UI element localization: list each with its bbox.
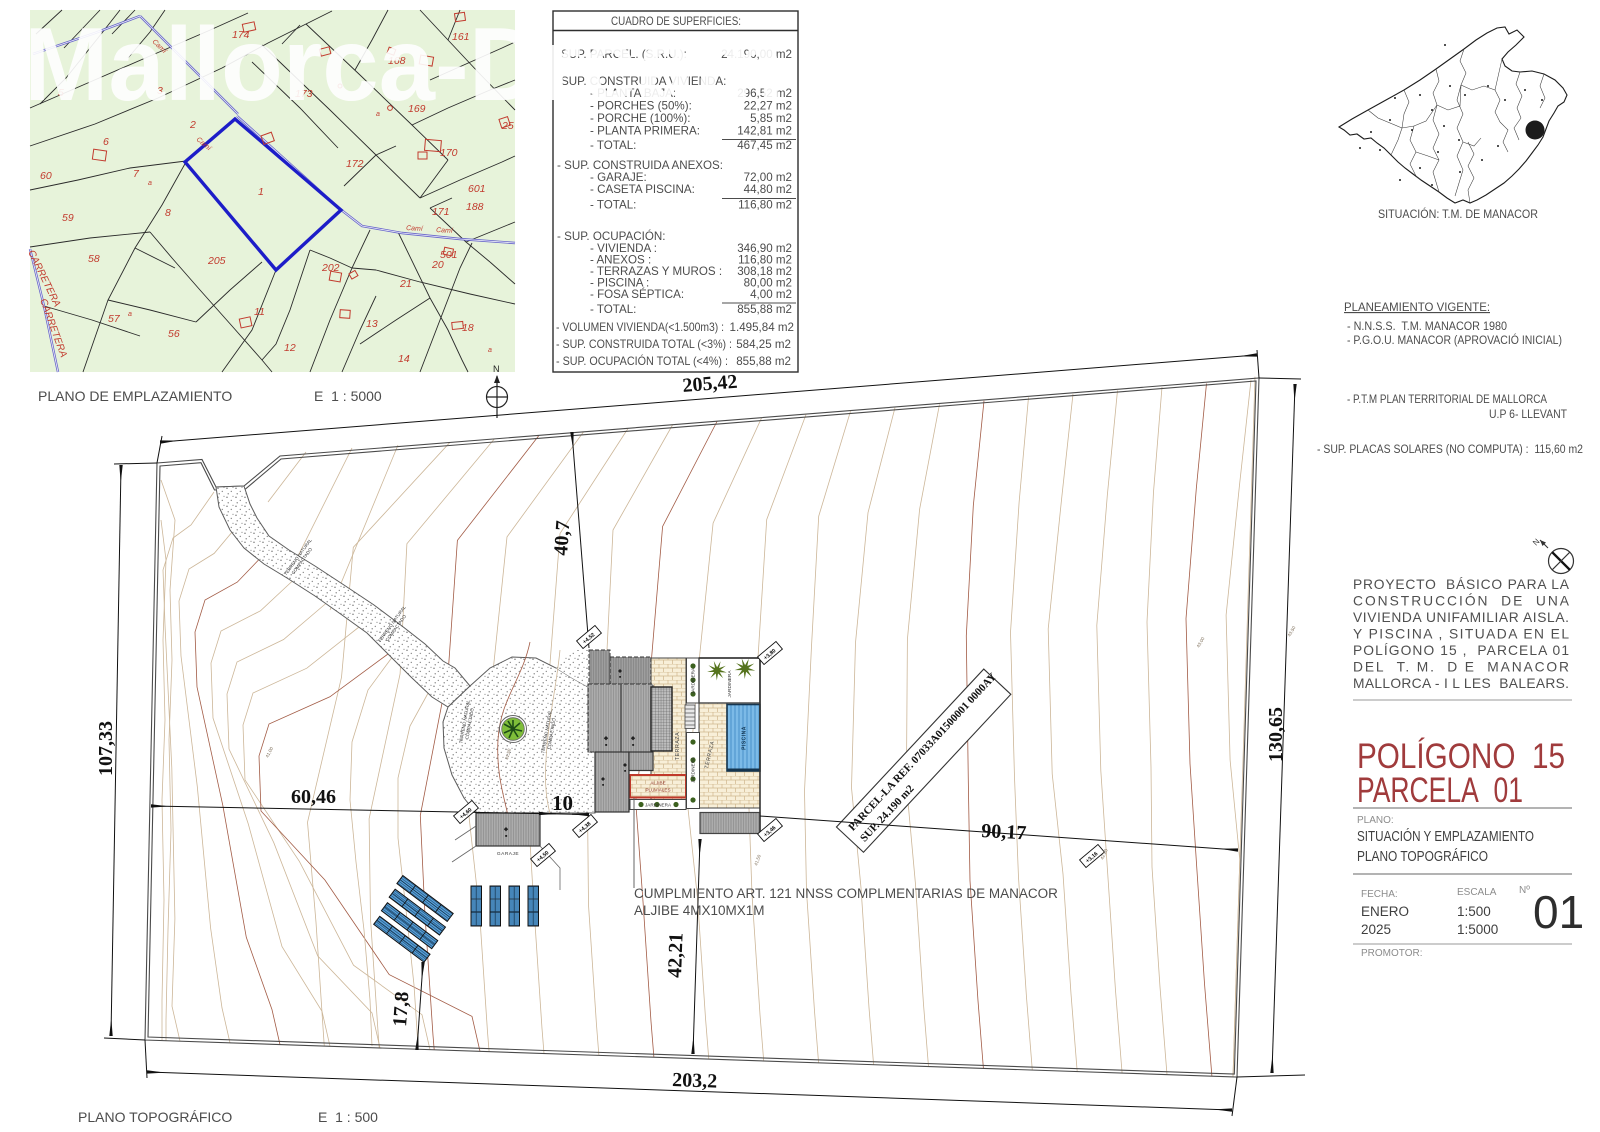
svg-text:59: 59 [62, 212, 74, 224]
svg-text:- TOTAL:: - TOTAL: [590, 199, 636, 212]
svg-text:Camí: Camí [436, 227, 454, 235]
svg-text:a: a [488, 347, 492, 354]
svg-text:SITUACIÓN Y EMPLAZAMIENTO: SITUACIÓN Y EMPLAZAMIENTO [1357, 828, 1534, 845]
svg-text:855,88 m2: 855,88 m2 [736, 355, 791, 368]
svg-text:PARCELA 01: PARCELA 01 [1357, 771, 1523, 810]
svg-text:13: 13 [366, 318, 378, 330]
svg-text:116,80 m2: 116,80 m2 [738, 199, 792, 212]
svg-text:- CASETA PISCINA:: - CASETA PISCINA: [590, 183, 695, 196]
svg-text:130,65: 130,65 [1265, 707, 1287, 762]
svg-text:60: 60 [40, 170, 52, 182]
svg-text:1.495,84 m2: 1.495,84 m2 [730, 321, 794, 334]
svg-text:E 1 : 500: E 1 : 500 [318, 1109, 378, 1125]
svg-text:01: 01 [1533, 886, 1584, 938]
svg-text:11: 11 [254, 306, 265, 318]
svg-text:a: a [128, 311, 132, 318]
svg-text:SITUACIÓN: T.M. DE MANACOR: SITUACIÓN: T.M. DE MANACOR [1378, 208, 1538, 221]
svg-text:41,00: 41,00 [264, 746, 274, 759]
svg-text:21: 21 [399, 278, 412, 290]
svg-text:60,46: 60,46 [291, 786, 336, 808]
svg-text:203,2: 203,2 [672, 1069, 718, 1093]
svg-text:205,42: 205,42 [682, 371, 739, 397]
svg-text:CUMPLMIENTO ART. 121 NNSS COMP: CUMPLMIENTO ART. 121 NNSS COMPLMENTARIAS… [634, 886, 1058, 901]
svg-text:- SUP. OCUPACIÓN TOTAL (<4%) :: - SUP. OCUPACIÓN TOTAL (<4%) : [556, 355, 728, 368]
svg-text:PLANO TOPOGRÁFICO: PLANO TOPOGRÁFICO [78, 1109, 232, 1125]
svg-text:- FOSA SÉPTICA:: - FOSA SÉPTICA: [590, 288, 684, 301]
svg-text:VIVIENDA UNIFAMILIAR AISLA.: VIVIENDA UNIFAMILIAR AISLA. [1353, 610, 1569, 625]
svg-text:- VOLUMEN VIVIENDA(<1.500m3) :: - VOLUMEN VIVIENDA(<1.500m3) : [556, 321, 724, 334]
svg-text:467,45 m2: 467,45 m2 [737, 139, 792, 152]
svg-text:Camí: Camí [406, 225, 424, 233]
svg-text:56: 56 [168, 328, 180, 340]
svg-text:584,25 m2: 584,25 m2 [736, 338, 791, 351]
svg-text:172: 172 [346, 158, 364, 170]
svg-text:PLUVIALES: PLUVIALES [645, 788, 670, 793]
svg-text:14: 14 [398, 353, 410, 365]
svg-text:43,50: 43,50 [1287, 625, 1297, 638]
svg-text:JARDINERA: JARDINERA [645, 803, 672, 808]
svg-text:FECHA:: FECHA: [1361, 889, 1398, 900]
svg-text:Nº: Nº [1519, 885, 1530, 896]
svg-text:ALJIBE 4MX10MX1M: ALJIBE 4MX10MX1M [634, 903, 765, 918]
svg-text:- P.G.O.U. MANACOR (APROVACIÓ: - P.G.O.U. MANACOR (APROVACIÓ INICIAL) [1347, 334, 1562, 347]
svg-text:JARDINERA: JARDINERA [727, 670, 733, 698]
svg-text:PROMOTOR:: PROMOTOR: [1361, 948, 1422, 959]
svg-text:U.P 6- LLEVANT: U.P 6- LLEVANT [1489, 409, 1567, 421]
svg-text:43,00: 43,00 [1196, 636, 1206, 649]
svg-text:2025: 2025 [1361, 922, 1391, 937]
svg-text:1:5000: 1:5000 [1457, 922, 1498, 937]
svg-text:N: N [1531, 537, 1542, 548]
svg-text:PLANO DE EMPLAZAMIENTO: PLANO DE EMPLAZAMIENTO [38, 388, 232, 404]
svg-text:PISCINA: PISCINA [742, 726, 748, 750]
svg-text:57: 57 [108, 313, 121, 325]
svg-text:DEL T. M. D E MANACOR: DEL T. M. D E MANACOR [1353, 660, 1569, 675]
svg-text:1:500: 1:500 [1457, 904, 1491, 919]
svg-text:- TOTAL:: - TOTAL: [590, 303, 636, 316]
svg-text:601: 601 [468, 183, 486, 195]
svg-text:PARCEL-LA REF. 07033A01500001: PARCEL-LA REF. 07033A01500001 0000AY [846, 671, 999, 834]
svg-text:E 1 : 5000: E 1 : 5000 [314, 388, 382, 404]
svg-text:4,00 m2: 4,00 m2 [750, 288, 792, 301]
svg-text:- N.N.S.S. T.M. MANACOR 1980: - N.N.S.S. T.M. MANACOR 1980 [1347, 321, 1507, 333]
svg-text:6: 6 [103, 136, 109, 148]
svg-text:142,81 m2: 142,81 m2 [737, 125, 792, 138]
svg-text:N: N [493, 364, 500, 374]
svg-text:- SUP. CONSTRUIDA TOTAL (<3%): - SUP. CONSTRUIDA TOTAL (<3%) : [556, 338, 732, 351]
svg-text:ENERO: ENERO [1361, 904, 1409, 919]
svg-text:PLANO:: PLANO: [1357, 815, 1394, 826]
svg-text:JARDINERA: JARDINERA [691, 667, 696, 694]
svg-text:- PLANTA PRIMERA:: - PLANTA PRIMERA: [590, 125, 700, 138]
svg-text:171: 171 [432, 206, 450, 218]
svg-text:855,88 m2: 855,88 m2 [737, 303, 792, 316]
svg-text:- TOTAL:: - TOTAL: [590, 139, 636, 152]
svg-text:MALLORCA - I L LES BALEARS.: MALLORCA - I L LES BALEARS. [1353, 676, 1569, 691]
svg-text:JARDINERA: JARDINERA [691, 756, 696, 783]
svg-text:90,17: 90,17 [981, 820, 1027, 844]
svg-text:12: 12 [284, 342, 296, 354]
svg-text:Mallorca-Dream: Mallorca-Dream [24, 7, 784, 123]
svg-text:107,33: 107,33 [95, 721, 117, 776]
svg-text:PROYECTO BÁSICO PARA LA: PROYECTO BÁSICO PARA LA [1353, 576, 1570, 592]
svg-text:40,7: 40,7 [550, 520, 574, 556]
svg-text:- P.T.M PLAN TERRITORIAL DE MA: - P.T.M PLAN TERRITORIAL DE MALLORCA [1347, 394, 1547, 406]
svg-text:41,50: 41,50 [753, 854, 762, 867]
svg-text:GARAJE: GARAJE [497, 851, 519, 857]
svg-text:Y PISCINA , SITUADA EN EL: Y PISCINA , SITUADA EN EL [1353, 627, 1569, 642]
svg-text:POLÍGONO 15 , PARCELA 01: POLÍGONO 15 , PARCELA 01 [1353, 642, 1569, 658]
svg-text:TERRAZA: TERRAZA [675, 732, 681, 760]
svg-text:PLANO TOPOGRÁFICO: PLANO TOPOGRÁFICO [1357, 848, 1488, 865]
svg-text:205: 205 [207, 255, 226, 267]
svg-text:PLANEAMIENTO VIGENTE:: PLANEAMIENTO VIGENTE: [1344, 302, 1490, 314]
svg-text:44,80 m2: 44,80 m2 [744, 183, 792, 196]
svg-text:170: 170 [440, 147, 458, 159]
svg-text:42,21: 42,21 [664, 932, 688, 978]
svg-text:17,8: 17,8 [389, 991, 413, 1027]
svg-text:ALJIBE: ALJIBE [650, 781, 665, 786]
svg-text:188: 188 [466, 201, 484, 213]
svg-text:a: a [148, 180, 152, 187]
svg-text:- SUP. PLACAS SOLARES (NO COMP: - SUP. PLACAS SOLARES (NO COMPUTA) : 115… [1317, 444, 1583, 456]
svg-text:CONSTRUCCIÓN DE UNA: CONSTRUCCIÓN DE UNA [1353, 593, 1570, 609]
svg-text:ESCALA: ESCALA [1457, 887, 1497, 898]
svg-text:8: 8 [165, 207, 171, 219]
svg-text:58: 58 [88, 253, 100, 265]
svg-text:10: 10 [552, 791, 573, 815]
svg-text:1: 1 [258, 186, 264, 198]
